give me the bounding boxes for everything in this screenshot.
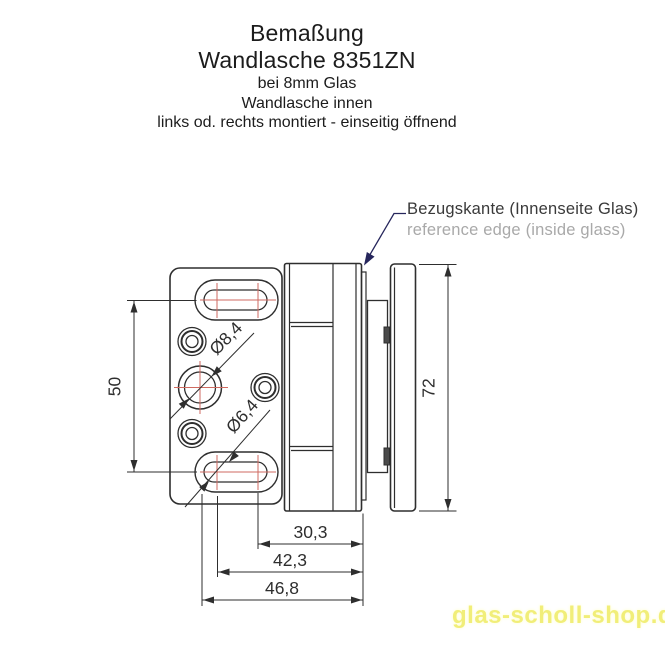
reference-edge-leader [360,214,406,268]
hinge-body-outline [285,264,362,512]
dim-dia-8-4: Ø8,4 [205,318,246,359]
wall-plate-outline [170,268,282,504]
dim-72: 72 [419,378,439,397]
technical-drawing-page: Bemaßung Wandlasche 8351ZN bei 8mm Glas … [0,0,665,665]
dim-dia-6-4: Ø6,4 [222,395,262,437]
screw-head-right [251,374,279,402]
dim-46-8: 46,8 [265,578,299,598]
screw-head-top [178,328,206,356]
clamp-pad-top [384,327,390,343]
screw-head-bottom [178,420,206,448]
dim-30-3: 30,3 [293,522,327,542]
leader-arrow-icon [360,252,374,268]
dim-50: 50 [105,377,125,397]
clamp-pad-bottom [384,448,390,465]
side-view [285,264,416,512]
centerlines [174,283,276,490]
dim-42-3: 42,3 [273,550,307,570]
front-view [170,268,282,504]
dimension-drawing: 50 72 30,3 42,3 46,8 Ø8,4 Ø6,4 [0,0,665,665]
glass-clamp-block [368,301,388,473]
